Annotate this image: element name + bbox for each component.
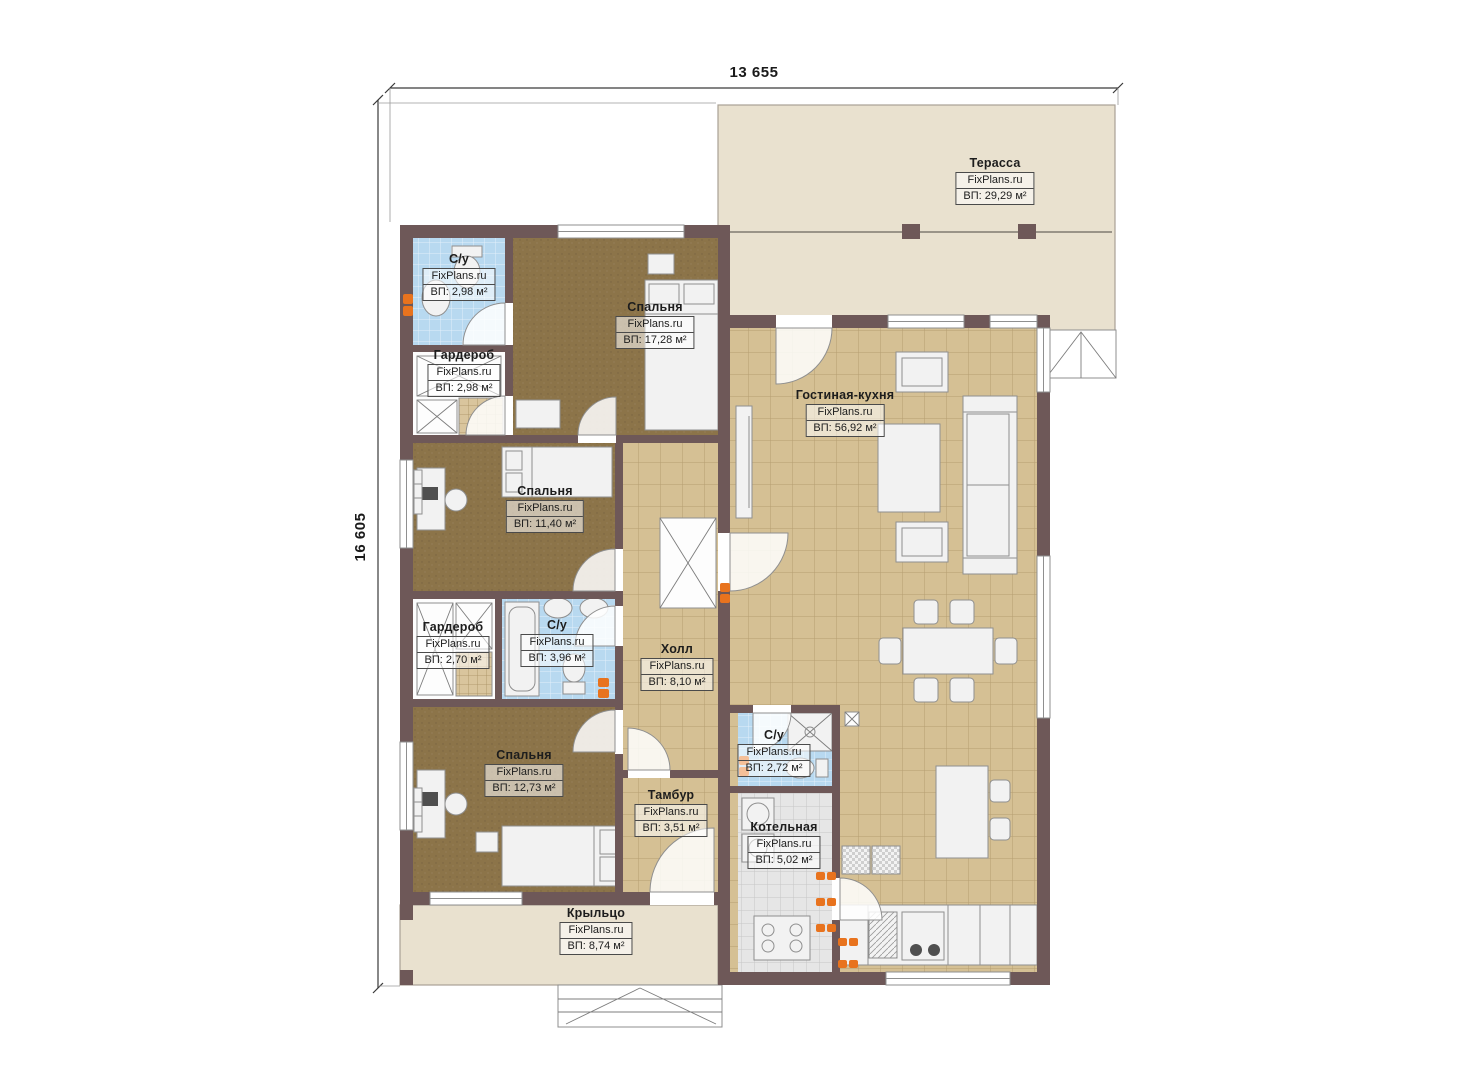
terrace-step-mark xyxy=(1046,330,1116,378)
watermark: FixPlans.ru xyxy=(641,659,712,675)
room-area: ВП: 17,28 м² xyxy=(616,333,693,348)
room-info-box: FixPlans.ru ВП: 17,28 м² xyxy=(615,316,694,349)
room-label-hall: Холл FixPlans.ru ВП: 8,10 м² xyxy=(640,642,713,691)
room-label-bathroom-3: С/у FixPlans.ru ВП: 2,72 м² xyxy=(737,728,810,777)
room-name: Гардероб xyxy=(416,620,489,634)
room-name: Спальня xyxy=(506,484,584,498)
room-area: ВП: 11,40 м² xyxy=(507,517,583,532)
dresser-bedroom-1 xyxy=(516,400,560,428)
armchair xyxy=(896,522,948,562)
window xyxy=(1037,328,1050,392)
watermark: FixPlans.ru xyxy=(521,635,592,651)
room-name: Холл xyxy=(640,642,713,656)
radiator-bedroom-3 xyxy=(414,788,422,832)
sofa xyxy=(963,396,1017,574)
room-area: ВП: 2,98 м² xyxy=(423,285,494,300)
room-info-box: FixPlans.ru ВП: 2,98 м² xyxy=(422,268,495,301)
terrace-column xyxy=(1018,224,1036,239)
room-label-wardrobe-1: Гардероб FixPlans.ru ВП: 2,98 м² xyxy=(427,348,500,397)
room-name: Тамбур xyxy=(634,788,707,802)
room-name: Крыльцо xyxy=(559,906,632,920)
room-name: Гостиная-кухня xyxy=(796,388,895,402)
room-area: ВП: 2,70 м² xyxy=(417,653,488,668)
room-area: ВП: 3,51 м² xyxy=(635,821,706,836)
room-name: Терасса xyxy=(955,156,1034,170)
room-area: ВП: 8,10 м² xyxy=(641,675,712,690)
chair xyxy=(445,489,467,511)
room-area: ВП: 3,96 м² xyxy=(521,651,592,666)
room-area: ВП: 2,72 м² xyxy=(738,761,809,776)
watermark: FixPlans.ru xyxy=(616,317,693,333)
closet-hall xyxy=(660,518,716,608)
room-name: С/у xyxy=(737,728,810,742)
room-label-wardrobe-2: Гардероб FixPlans.ru ВП: 2,70 м² xyxy=(416,620,489,669)
fridge xyxy=(842,846,870,874)
nightstand xyxy=(476,832,498,852)
radiator-bedroom-2 xyxy=(414,470,422,514)
room-name: Спальня xyxy=(484,748,563,762)
stool xyxy=(990,818,1010,840)
room-label-bathroom-2: С/у FixPlans.ru ВП: 3,96 м² xyxy=(520,618,593,667)
window xyxy=(1037,556,1050,718)
room-info-box: FixPlans.ru ВП: 2,98 м² xyxy=(427,364,500,397)
coffee-table xyxy=(878,424,940,512)
floor-plan-page: 13 655 16 605 Терасса FixPlans.ru ВП: 29… xyxy=(0,0,1474,1080)
room-info-box: FixPlans.ru ВП: 3,51 м² xyxy=(634,804,707,837)
room-name: Гардероб xyxy=(427,348,500,362)
room-label-bedroom-3: Спальня FixPlans.ru ВП: 12,73 м² xyxy=(484,748,563,797)
room-info-box: FixPlans.ru ВП: 2,72 м² xyxy=(737,744,810,777)
room-label-terrace: Терасса FixPlans.ru ВП: 29,29 м² xyxy=(955,156,1034,205)
watermark: FixPlans.ru xyxy=(806,405,883,421)
room-name: С/у xyxy=(422,252,495,266)
window xyxy=(990,315,1037,328)
room-info-box: FixPlans.ru ВП: 8,10 м² xyxy=(640,658,713,691)
watermark: FixPlans.ru xyxy=(417,637,488,653)
room-info-box: FixPlans.ru ВП: 56,92 м² xyxy=(805,404,884,437)
room-info-box: FixPlans.ru ВП: 11,40 м² xyxy=(506,500,584,533)
room-label-porch: Крыльцо FixPlans.ru ВП: 8,74 м² xyxy=(559,906,632,955)
room-info-box: FixPlans.ru ВП: 5,02 м² xyxy=(747,836,820,869)
floor-plan-drawing xyxy=(0,0,1474,1080)
watermark: FixPlans.ru xyxy=(748,837,819,853)
room-info-box: FixPlans.ru ВП: 12,73 м² xyxy=(484,764,563,797)
room-label-living-kitchen: Гостиная-кухня FixPlans.ru ВП: 56,92 м² xyxy=(796,388,895,437)
window xyxy=(400,460,413,548)
room-area: ВП: 56,92 м² xyxy=(806,421,883,436)
room-name: Спальня xyxy=(615,300,694,314)
room-area: ВП: 5,02 м² xyxy=(748,853,819,868)
appliance xyxy=(872,846,900,874)
watermark: FixPlans.ru xyxy=(738,745,809,761)
room-label-bedroom-2: Спальня FixPlans.ru ВП: 11,40 м² xyxy=(506,484,584,533)
watermark: FixPlans.ru xyxy=(507,501,583,517)
room-name: Котельная xyxy=(747,820,820,834)
window xyxy=(888,315,964,328)
room-name: С/у xyxy=(520,618,593,632)
window xyxy=(430,892,522,905)
chair xyxy=(445,793,467,815)
window xyxy=(886,972,1010,985)
porch-steps xyxy=(558,985,722,1027)
room-info-box: FixPlans.ru ВП: 3,96 м² xyxy=(520,634,593,667)
watermark: FixPlans.ru xyxy=(423,269,494,285)
watermark: FixPlans.ru xyxy=(635,805,706,821)
room-area: ВП: 8,74 м² xyxy=(560,939,631,954)
terrace-column xyxy=(902,224,920,239)
window xyxy=(400,742,413,830)
watermark: FixPlans.ru xyxy=(485,765,562,781)
room-label-bedroom-1: Спальня FixPlans.ru ВП: 17,28 м² xyxy=(615,300,694,349)
room-area: ВП: 29,29 м² xyxy=(956,189,1033,204)
dining-table xyxy=(903,628,993,674)
watermark: FixPlans.ru xyxy=(560,923,631,939)
sink-bathroom-2 xyxy=(544,598,572,618)
room-label-vestibule: Тамбур FixPlans.ru ВП: 3,51 м² xyxy=(634,788,707,837)
armchair xyxy=(896,352,948,392)
dimension-height-label: 16 605 xyxy=(352,482,369,592)
room-info-box: FixPlans.ru ВП: 2,70 м² xyxy=(416,636,489,669)
room-label-bathroom-1: С/у FixPlans.ru ВП: 2,98 м² xyxy=(422,252,495,301)
tv-unit xyxy=(736,406,752,518)
room-area: ВП: 2,98 м² xyxy=(428,381,499,396)
stool xyxy=(990,780,1010,802)
watermark: FixPlans.ru xyxy=(956,173,1033,189)
room-area: ВП: 12,73 м² xyxy=(485,781,562,796)
room-label-boiler-room: Котельная FixPlans.ru ВП: 5,02 м² xyxy=(747,820,820,869)
nightstand xyxy=(648,254,674,274)
room-info-box: FixPlans.ru ВП: 8,74 м² xyxy=(559,922,632,955)
room-info-box: FixPlans.ru ВП: 29,29 м² xyxy=(955,172,1034,205)
watermark: FixPlans.ru xyxy=(428,365,499,381)
vent-mark xyxy=(845,712,859,726)
window xyxy=(558,225,684,238)
dimension-width-label: 13 655 xyxy=(390,64,1118,81)
